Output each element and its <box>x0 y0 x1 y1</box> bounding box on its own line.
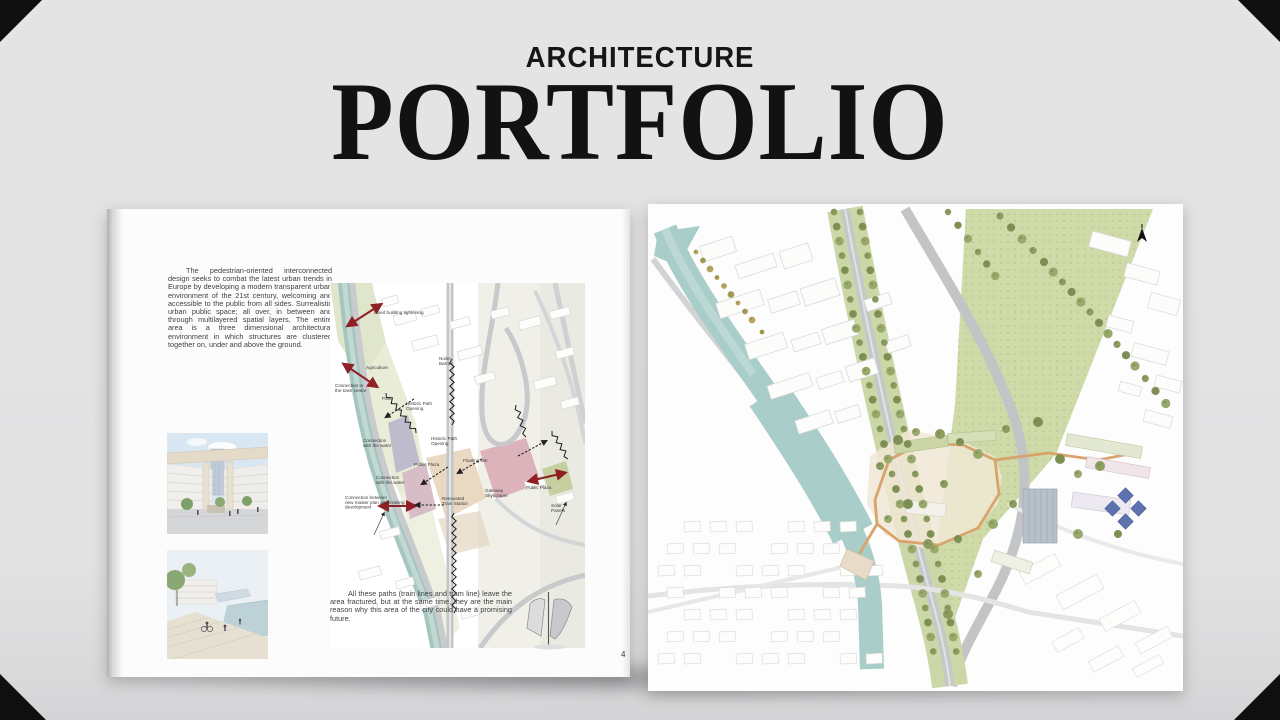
page-title: PORTFOLIO <box>0 58 1280 187</box>
portfolio-right-page <box>648 204 1183 691</box>
render-waterfront-promenade <box>167 550 268 659</box>
render-portal-building <box>167 433 268 534</box>
svg-text:Connection tothe town centre: Connection tothe town centre <box>335 383 367 393</box>
corner-accent-top-left <box>0 0 42 42</box>
outro-paragraph: All these paths (train lines and tram li… <box>330 590 512 623</box>
svg-text:Park: Park <box>382 396 392 401</box>
svg-text:Agriculture: Agriculture <box>366 365 388 370</box>
svg-text:Lined building tightening: Lined building tightening <box>374 310 424 315</box>
corner-accent-bottom-left <box>0 674 46 720</box>
thumbnail-canvas: { "title": { "kicker": "ARCHITECTURE", "… <box>0 0 1280 720</box>
svg-text:Public Plaza: Public Plaza <box>526 485 552 490</box>
svg-text:Floating link: Floating link <box>463 458 488 463</box>
svg-text:Public Plaza: Public Plaza <box>414 462 440 467</box>
master-plan-map <box>648 204 1183 691</box>
page-curl <box>107 209 123 677</box>
portfolio-left-page: The pedestrian-oriented interconnected d… <box>107 209 630 677</box>
corner-accent-top-right <box>1238 0 1280 42</box>
intro-paragraph: The pedestrian-oriented interconnected d… <box>168 267 332 349</box>
corner-accent-bottom-right <box>1234 674 1280 720</box>
concept-form-sketch <box>520 590 580 652</box>
page-number: 4 <box>621 650 625 659</box>
spine-shadow <box>622 209 630 677</box>
